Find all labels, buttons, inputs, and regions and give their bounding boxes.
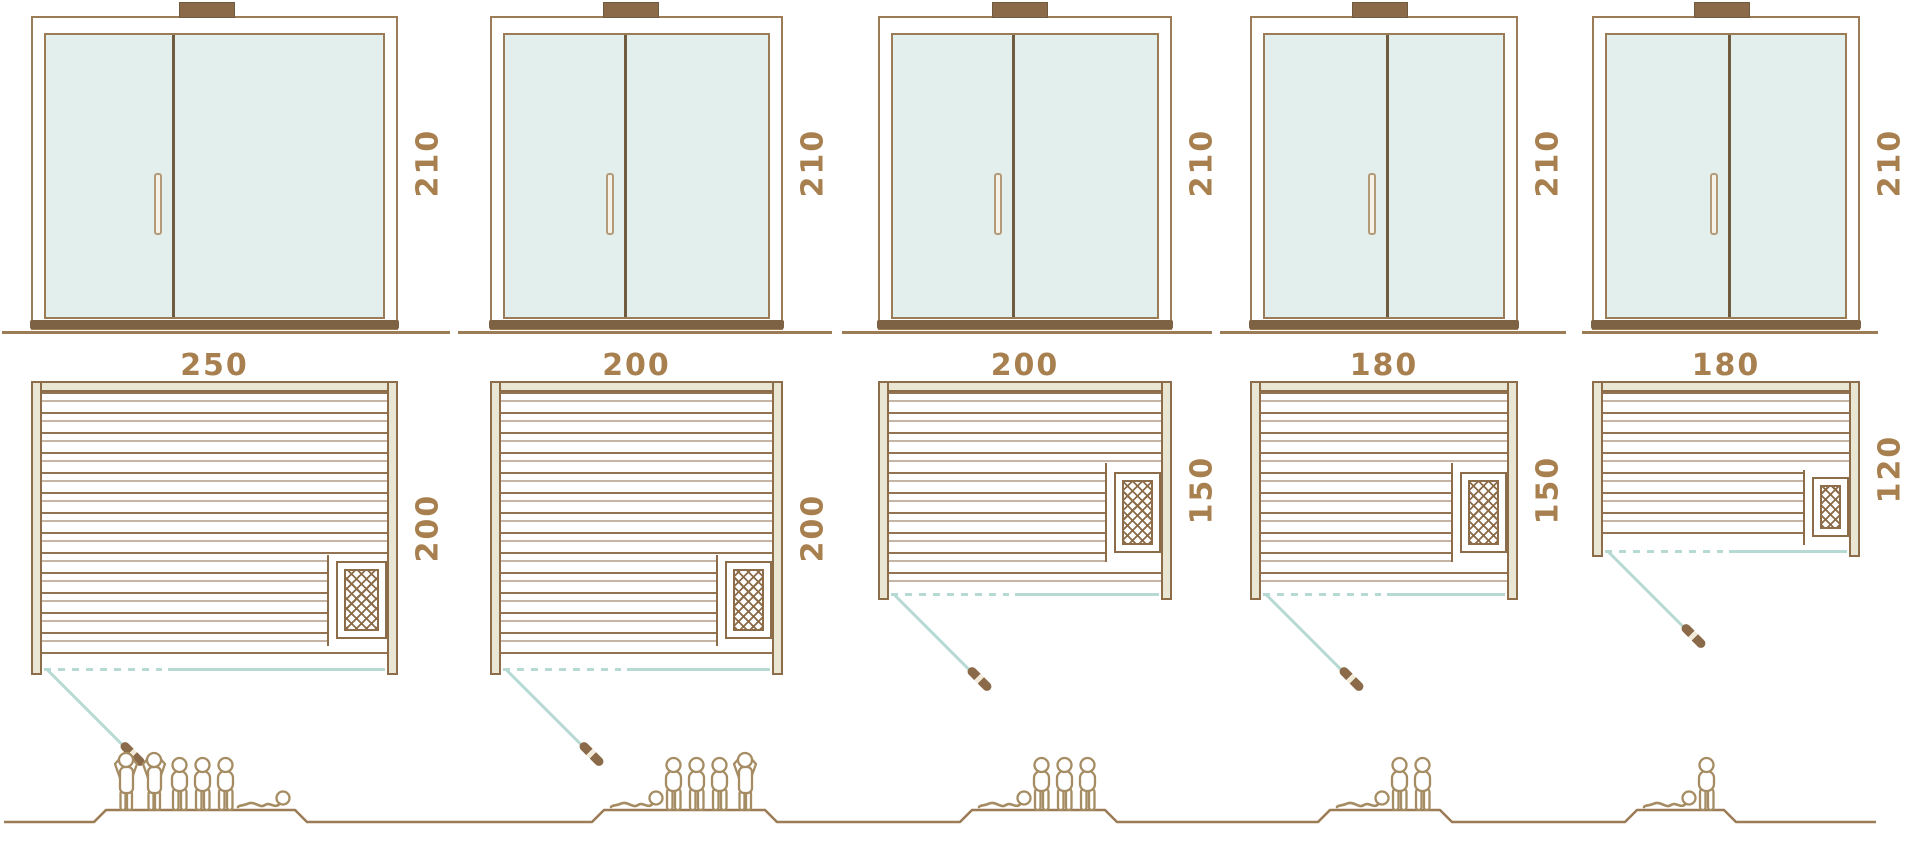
glass-double-door bbox=[891, 33, 1159, 319]
person-leg bbox=[1424, 789, 1430, 810]
plan-back-wall bbox=[887, 381, 1163, 392]
ground-profile-line bbox=[4, 810, 1876, 822]
door-divider bbox=[624, 35, 627, 317]
roof-vent bbox=[603, 2, 659, 18]
glass-double-door bbox=[1605, 33, 1847, 319]
glass-double-door bbox=[44, 33, 385, 319]
person-standing-icon bbox=[738, 753, 752, 767]
plan-right-post bbox=[1849, 381, 1860, 557]
person-leg bbox=[1416, 789, 1422, 810]
swing-door-handle-icon bbox=[1680, 622, 1708, 650]
person-torso bbox=[1080, 771, 1095, 791]
person-leg bbox=[1035, 789, 1041, 810]
roof-vent bbox=[179, 2, 235, 18]
depth-dimension-label: 150 bbox=[1185, 456, 1220, 525]
sauna-size-diagram: 210 250 200 210 200 bbox=[0, 0, 1920, 856]
person-torso bbox=[739, 767, 752, 793]
person-sitting-icon bbox=[667, 758, 681, 772]
person-leg bbox=[698, 789, 704, 810]
door-divider bbox=[172, 35, 175, 317]
door-handle-icon bbox=[606, 173, 614, 235]
person-sitting-icon bbox=[1393, 758, 1407, 772]
person-leg bbox=[1089, 789, 1095, 810]
person-torso bbox=[1699, 771, 1714, 791]
floor-plan bbox=[31, 381, 398, 675]
door-sill bbox=[1591, 320, 1861, 329]
person-leg bbox=[1401, 789, 1407, 810]
person-sitting-icon bbox=[196, 758, 210, 772]
ground-line bbox=[458, 331, 832, 334]
plan-left-post bbox=[31, 381, 42, 675]
person-torso bbox=[195, 771, 210, 791]
plan-left-post bbox=[1250, 381, 1261, 600]
person-lying-icon bbox=[1683, 792, 1696, 805]
heater-niche bbox=[327, 555, 387, 646]
person-torso bbox=[712, 771, 727, 791]
ground-line bbox=[2, 331, 450, 334]
person-sitting-icon bbox=[1058, 758, 1072, 772]
heater-coil bbox=[733, 569, 764, 631]
door-opening-dashed-line bbox=[503, 668, 621, 671]
person-body bbox=[1337, 802, 1380, 807]
person-leg bbox=[204, 789, 210, 810]
person-sitting-icon bbox=[690, 758, 704, 772]
person-leg bbox=[1393, 789, 1399, 810]
door-opening-dashed-line bbox=[1263, 593, 1381, 596]
person-torso bbox=[218, 771, 233, 791]
door-sill bbox=[1249, 320, 1519, 329]
depth-dimension-label: 120 bbox=[1873, 435, 1908, 504]
person-standing-icon bbox=[147, 753, 161, 767]
person-leg bbox=[1058, 789, 1064, 810]
height-dimension-label: 210 bbox=[1185, 129, 1220, 198]
glass-front-line bbox=[168, 668, 385, 671]
width-dimension-label: 200 bbox=[490, 348, 783, 383]
glass-front-line bbox=[1387, 593, 1505, 596]
person-leg bbox=[1081, 789, 1087, 810]
heater-niche bbox=[1451, 463, 1507, 562]
width-dimension-label: 180 bbox=[1592, 348, 1860, 383]
plan-right-post bbox=[1161, 381, 1172, 600]
person-sitting-icon bbox=[1416, 758, 1430, 772]
ground-line bbox=[1582, 331, 1878, 334]
door-sill bbox=[30, 320, 399, 329]
swing-door-handle-icon bbox=[1338, 665, 1366, 693]
person-torso bbox=[172, 771, 187, 791]
heater bbox=[725, 561, 772, 639]
person-torso bbox=[148, 767, 161, 793]
person-torso bbox=[1392, 771, 1407, 791]
elevation-front-view bbox=[878, 16, 1172, 330]
person-lying-icon bbox=[1376, 792, 1389, 805]
person-torso bbox=[689, 771, 704, 791]
person-sitting-icon bbox=[173, 758, 187, 772]
person-body bbox=[611, 802, 654, 807]
plan-right-post bbox=[1507, 381, 1518, 600]
person-leg bbox=[675, 789, 681, 810]
glass-double-door bbox=[1263, 33, 1505, 319]
door-handle-icon bbox=[1368, 173, 1376, 235]
plan-left-post bbox=[1592, 381, 1603, 557]
height-dimension-label: 210 bbox=[1873, 129, 1908, 198]
person-torso bbox=[1415, 771, 1430, 791]
height-dimension-label: 210 bbox=[796, 129, 831, 198]
person-body bbox=[238, 802, 281, 807]
floor-plan bbox=[1250, 381, 1518, 600]
plan-back-wall bbox=[1259, 381, 1509, 392]
heater bbox=[1812, 477, 1849, 537]
person-torso bbox=[1057, 771, 1072, 791]
ground-line bbox=[1220, 331, 1566, 334]
person-leg bbox=[1043, 789, 1049, 810]
person-torso bbox=[666, 771, 681, 791]
person-leg bbox=[690, 789, 696, 810]
person-standing-icon bbox=[119, 753, 133, 767]
floor-plan bbox=[878, 381, 1172, 600]
floor-plan bbox=[1592, 381, 1860, 557]
glass-front-line bbox=[627, 668, 770, 671]
person-sitting-icon bbox=[1700, 758, 1714, 772]
heater-coil bbox=[1468, 480, 1499, 545]
plan-back-wall bbox=[40, 381, 389, 392]
person-sitting-icon bbox=[713, 758, 727, 772]
elevation-front-view bbox=[490, 16, 783, 330]
person-leg bbox=[181, 789, 187, 810]
person-leg bbox=[1700, 789, 1706, 810]
roof-vent bbox=[992, 2, 1048, 18]
heater-niche bbox=[1803, 470, 1849, 545]
door-divider bbox=[1012, 35, 1015, 317]
depth-dimension-label: 200 bbox=[411, 494, 446, 563]
depth-dimension-label: 150 bbox=[1531, 456, 1566, 525]
door-sill bbox=[489, 320, 784, 329]
person-leg bbox=[1708, 789, 1714, 810]
person-body bbox=[1644, 802, 1687, 807]
elevation-front-view bbox=[1592, 16, 1860, 330]
roof-vent bbox=[1694, 2, 1750, 18]
plan-back-wall bbox=[1601, 381, 1851, 392]
width-dimension-label: 180 bbox=[1250, 348, 1518, 383]
plan-left-post bbox=[878, 381, 889, 600]
person-sitting-icon bbox=[1081, 758, 1095, 772]
glass-double-door bbox=[503, 33, 770, 319]
swing-door-handle-icon bbox=[966, 665, 994, 693]
door-divider bbox=[1386, 35, 1389, 317]
door-opening-dashed-line bbox=[891, 593, 1009, 596]
person-lying-icon bbox=[1018, 792, 1031, 805]
elevation-front-view bbox=[31, 16, 398, 330]
door-handle-icon bbox=[154, 173, 162, 235]
height-dimension-label: 210 bbox=[411, 129, 446, 198]
heater-niche bbox=[716, 555, 772, 646]
heater bbox=[336, 561, 387, 639]
person-leg bbox=[227, 789, 233, 810]
person-torso bbox=[120, 767, 133, 793]
width-dimension-label: 250 bbox=[31, 348, 398, 383]
person-leg bbox=[713, 789, 719, 810]
plan-right-post bbox=[772, 381, 783, 675]
heater-coil bbox=[1820, 485, 1841, 529]
person-leg bbox=[1066, 789, 1072, 810]
door-opening-dashed-line bbox=[1605, 550, 1723, 553]
person-body bbox=[979, 802, 1022, 807]
door-divider bbox=[1728, 35, 1731, 317]
person-leg bbox=[196, 789, 202, 810]
roof-vent bbox=[1352, 2, 1408, 18]
person-torso bbox=[1034, 771, 1049, 791]
person-lying-icon bbox=[650, 792, 663, 805]
width-dimension-label: 200 bbox=[878, 348, 1172, 383]
heater bbox=[1114, 472, 1161, 553]
plan-left-post bbox=[490, 381, 501, 675]
heater bbox=[1460, 472, 1507, 553]
person-lying-icon bbox=[277, 792, 290, 805]
person-sitting-icon bbox=[1035, 758, 1049, 772]
ground-line bbox=[842, 331, 1212, 334]
heater-niche bbox=[1105, 463, 1161, 562]
plan-back-wall bbox=[499, 381, 774, 392]
elevation-front-view bbox=[1250, 16, 1518, 330]
floor-plan bbox=[490, 381, 783, 675]
glass-front-line bbox=[1729, 550, 1847, 553]
height-dimension-label: 210 bbox=[1531, 129, 1566, 198]
door-opening-dashed-line bbox=[44, 668, 162, 671]
glass-front-line bbox=[1015, 593, 1159, 596]
person-leg bbox=[721, 789, 727, 810]
heater-coil bbox=[1122, 480, 1153, 545]
capacity-people-strip bbox=[0, 745, 1920, 856]
person-leg bbox=[173, 789, 179, 810]
depth-dimension-label: 200 bbox=[796, 494, 831, 563]
person-sitting-icon bbox=[219, 758, 233, 772]
person-leg bbox=[667, 789, 673, 810]
door-handle-icon bbox=[1710, 173, 1718, 235]
door-handle-icon bbox=[994, 173, 1002, 235]
person-leg bbox=[219, 789, 225, 810]
plan-right-post bbox=[387, 381, 398, 675]
heater-coil bbox=[344, 569, 379, 631]
door-sill bbox=[877, 320, 1173, 329]
